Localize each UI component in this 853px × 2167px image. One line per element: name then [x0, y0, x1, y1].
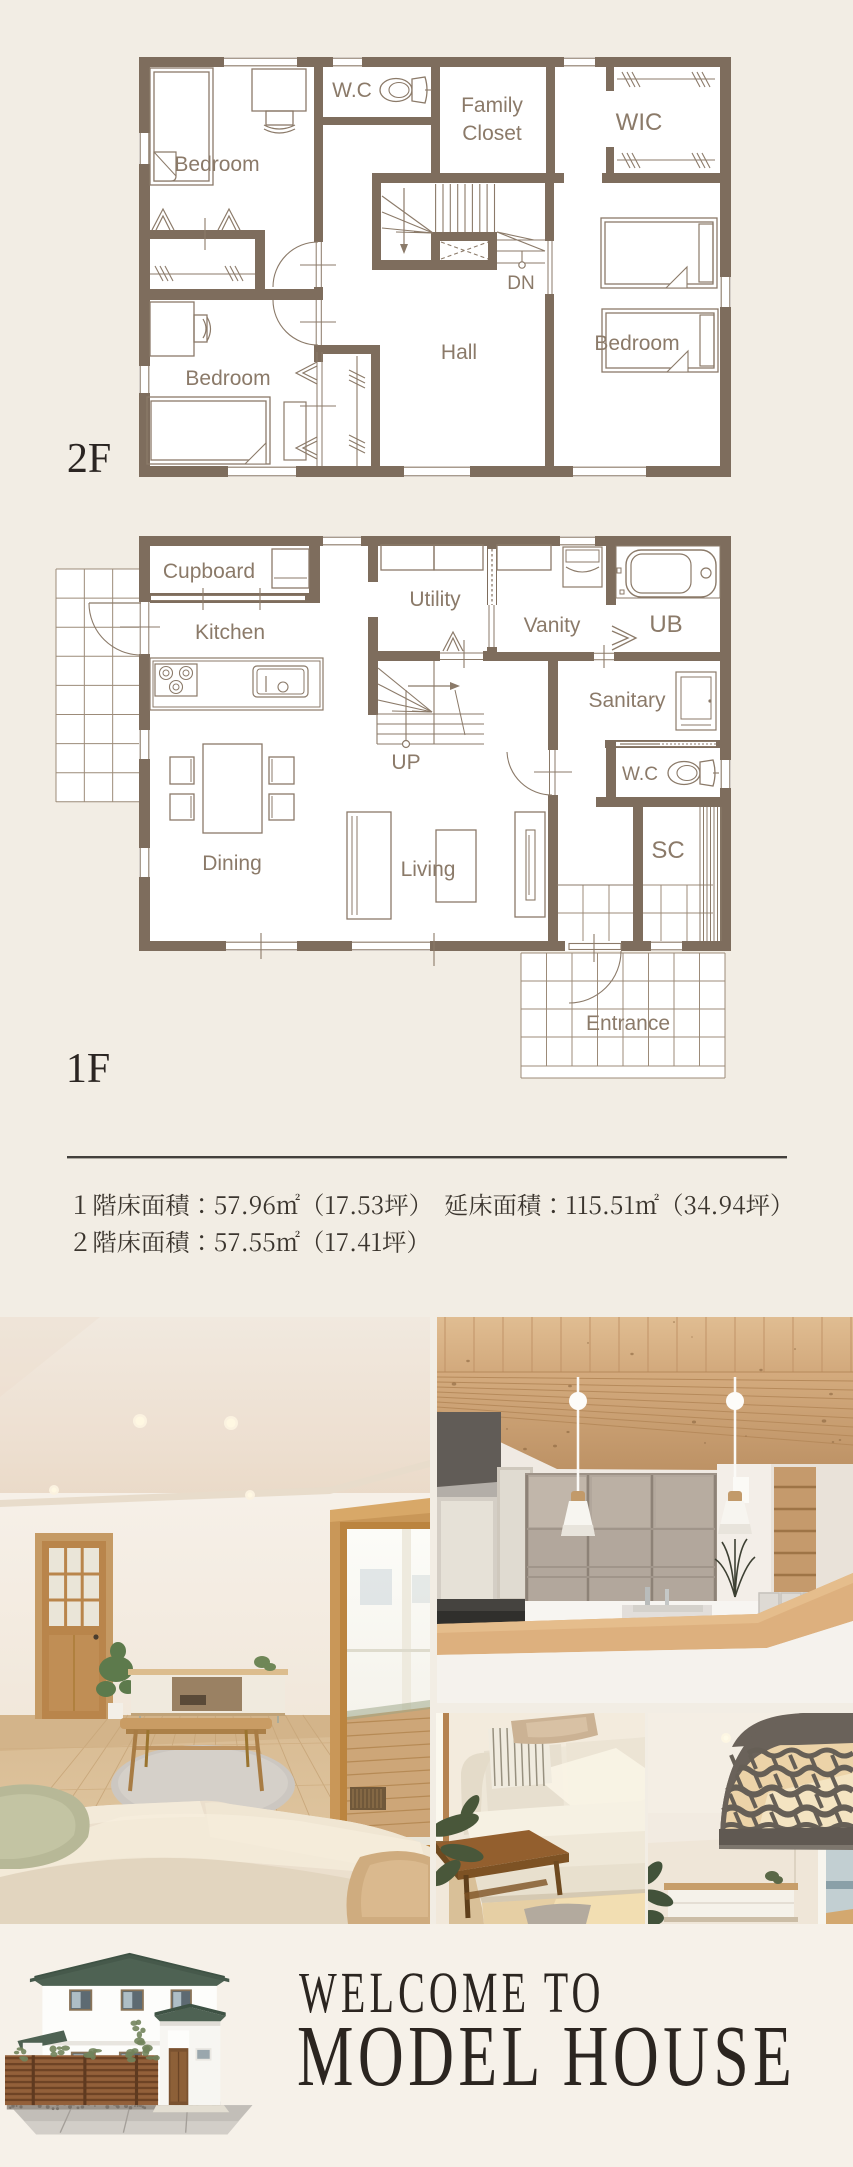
svg-text:Vanity: Vanity — [524, 614, 581, 637]
svg-text:Bedroom: Bedroom — [185, 367, 270, 390]
svg-text:Family: Family — [461, 94, 523, 117]
svg-text:Bedroom: Bedroom — [594, 332, 679, 355]
svg-text:W.C: W.C — [622, 764, 658, 785]
svg-text:UP: UP — [391, 751, 420, 774]
svg-text:2F: 2F — [67, 436, 111, 482]
svg-text:Kitchen: Kitchen — [195, 621, 265, 644]
svg-text:Dining: Dining — [202, 852, 262, 875]
svg-text:Entrance: Entrance — [586, 1012, 670, 1035]
svg-text:Utility: Utility — [409, 588, 461, 611]
svg-text:Living: Living — [401, 858, 456, 881]
svg-text:UB: UB — [649, 611, 682, 638]
svg-text:DN: DN — [507, 273, 534, 294]
svg-text:Bedroom: Bedroom — [174, 153, 259, 176]
svg-text:W.C: W.C — [332, 79, 372, 102]
svg-text:Cupboard: Cupboard — [163, 560, 255, 583]
svg-text:SC: SC — [651, 837, 684, 864]
svg-text:WIC: WIC — [616, 109, 663, 136]
svg-text:Sanitary: Sanitary — [588, 689, 666, 712]
svg-text:Closet: Closet — [462, 122, 522, 145]
svg-text:Hall: Hall — [441, 341, 477, 364]
svg-text:1F: 1F — [66, 1046, 110, 1092]
